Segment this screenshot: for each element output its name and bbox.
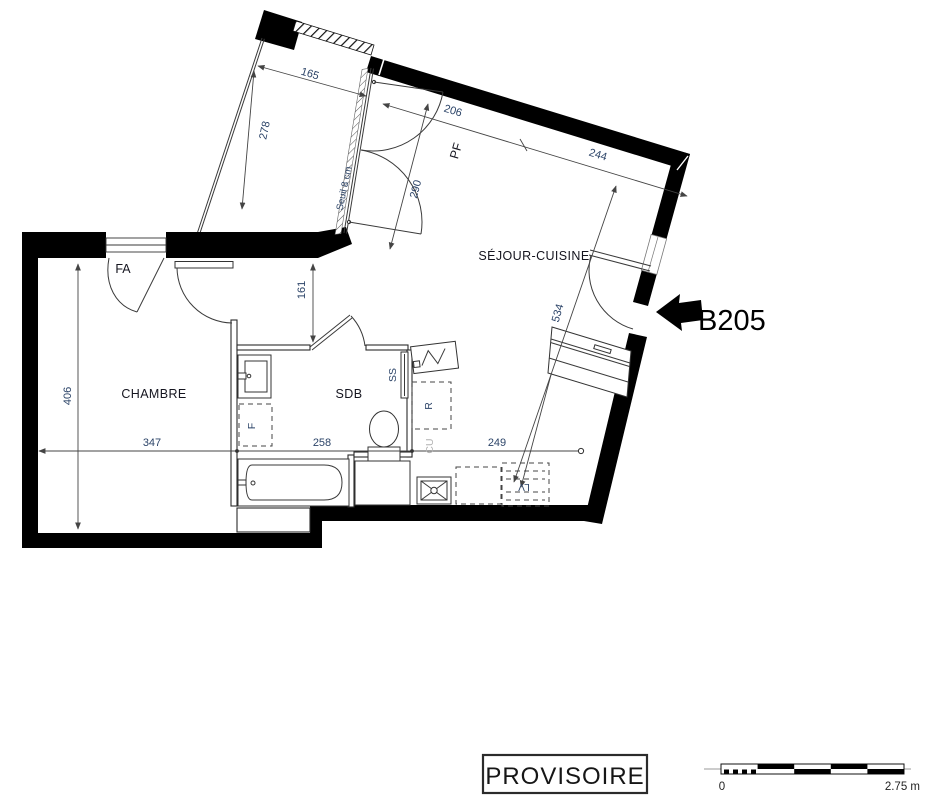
water-heater — [411, 341, 459, 373]
room-label-sejour: SÉJOUR-CUISINE — [478, 248, 589, 263]
annot-f: F — [246, 423, 258, 429]
dim-tick-end — [578, 448, 583, 453]
wc-tank — [368, 447, 400, 461]
wall-sdb-north-left — [237, 345, 310, 350]
water-heater-valve — [413, 361, 420, 368]
vanity-faucet-knob — [247, 374, 251, 378]
dim-161: 161 — [296, 281, 308, 299]
chambre-door-leaf — [175, 262, 233, 269]
kitchen-sink-drain — [431, 487, 437, 493]
floor-plan-drawing: 347 258 249 406 161 290 206 244 165 278 … — [0, 0, 937, 800]
bathtub-faucet — [238, 480, 246, 485]
scale-seg-top-2 — [831, 764, 868, 769]
stamp: PROVISOIRE — [483, 755, 647, 793]
scale-seg-bottom-2 — [867, 769, 904, 774]
annot-cu: CU — [424, 438, 436, 453]
dim-258: 258 — [313, 437, 331, 449]
dim-249: 249 — [488, 437, 506, 449]
wall-west — [22, 232, 38, 548]
scale-zero-label: 0 — [719, 781, 725, 793]
wall-sdb-north-right — [366, 345, 408, 350]
wall-south-chambre — [22, 533, 322, 548]
annot-lv: LV — [518, 481, 530, 492]
appliance-under-wc — [355, 461, 410, 505]
wall-chambre-sdb — [231, 320, 237, 506]
wall-tub-ledge — [237, 508, 310, 532]
scale-seg-bottom-1 — [794, 769, 831, 774]
annot-r: R — [423, 402, 435, 410]
room-label-sdb: SDB — [336, 387, 363, 401]
water-heater-box — [411, 341, 459, 373]
annot-ss: SS — [387, 368, 399, 382]
dim-347: 347 — [143, 437, 161, 449]
wall-north-right — [166, 232, 318, 258]
dim-tick-1 — [235, 449, 239, 453]
room-label-chambre: CHAMBRE — [121, 387, 186, 401]
vanity-faucet — [238, 373, 246, 379]
annot-fa: FA — [115, 262, 131, 276]
stamp-text: PROVISOIRE — [485, 763, 644, 790]
scale-seg-top-1 — [758, 764, 795, 769]
wc-bowl — [370, 411, 399, 447]
dim-406: 406 — [62, 387, 74, 405]
scale-max-label: 2.75 m — [885, 781, 920, 793]
bathtub-drain — [251, 481, 255, 485]
unit-label: B205 — [698, 305, 766, 337]
wall-north-left — [22, 232, 106, 258]
floor-plan-page: 347 258 249 406 161 290 206 244 165 278 … — [0, 0, 937, 800]
dim-tick-2 — [410, 449, 414, 453]
